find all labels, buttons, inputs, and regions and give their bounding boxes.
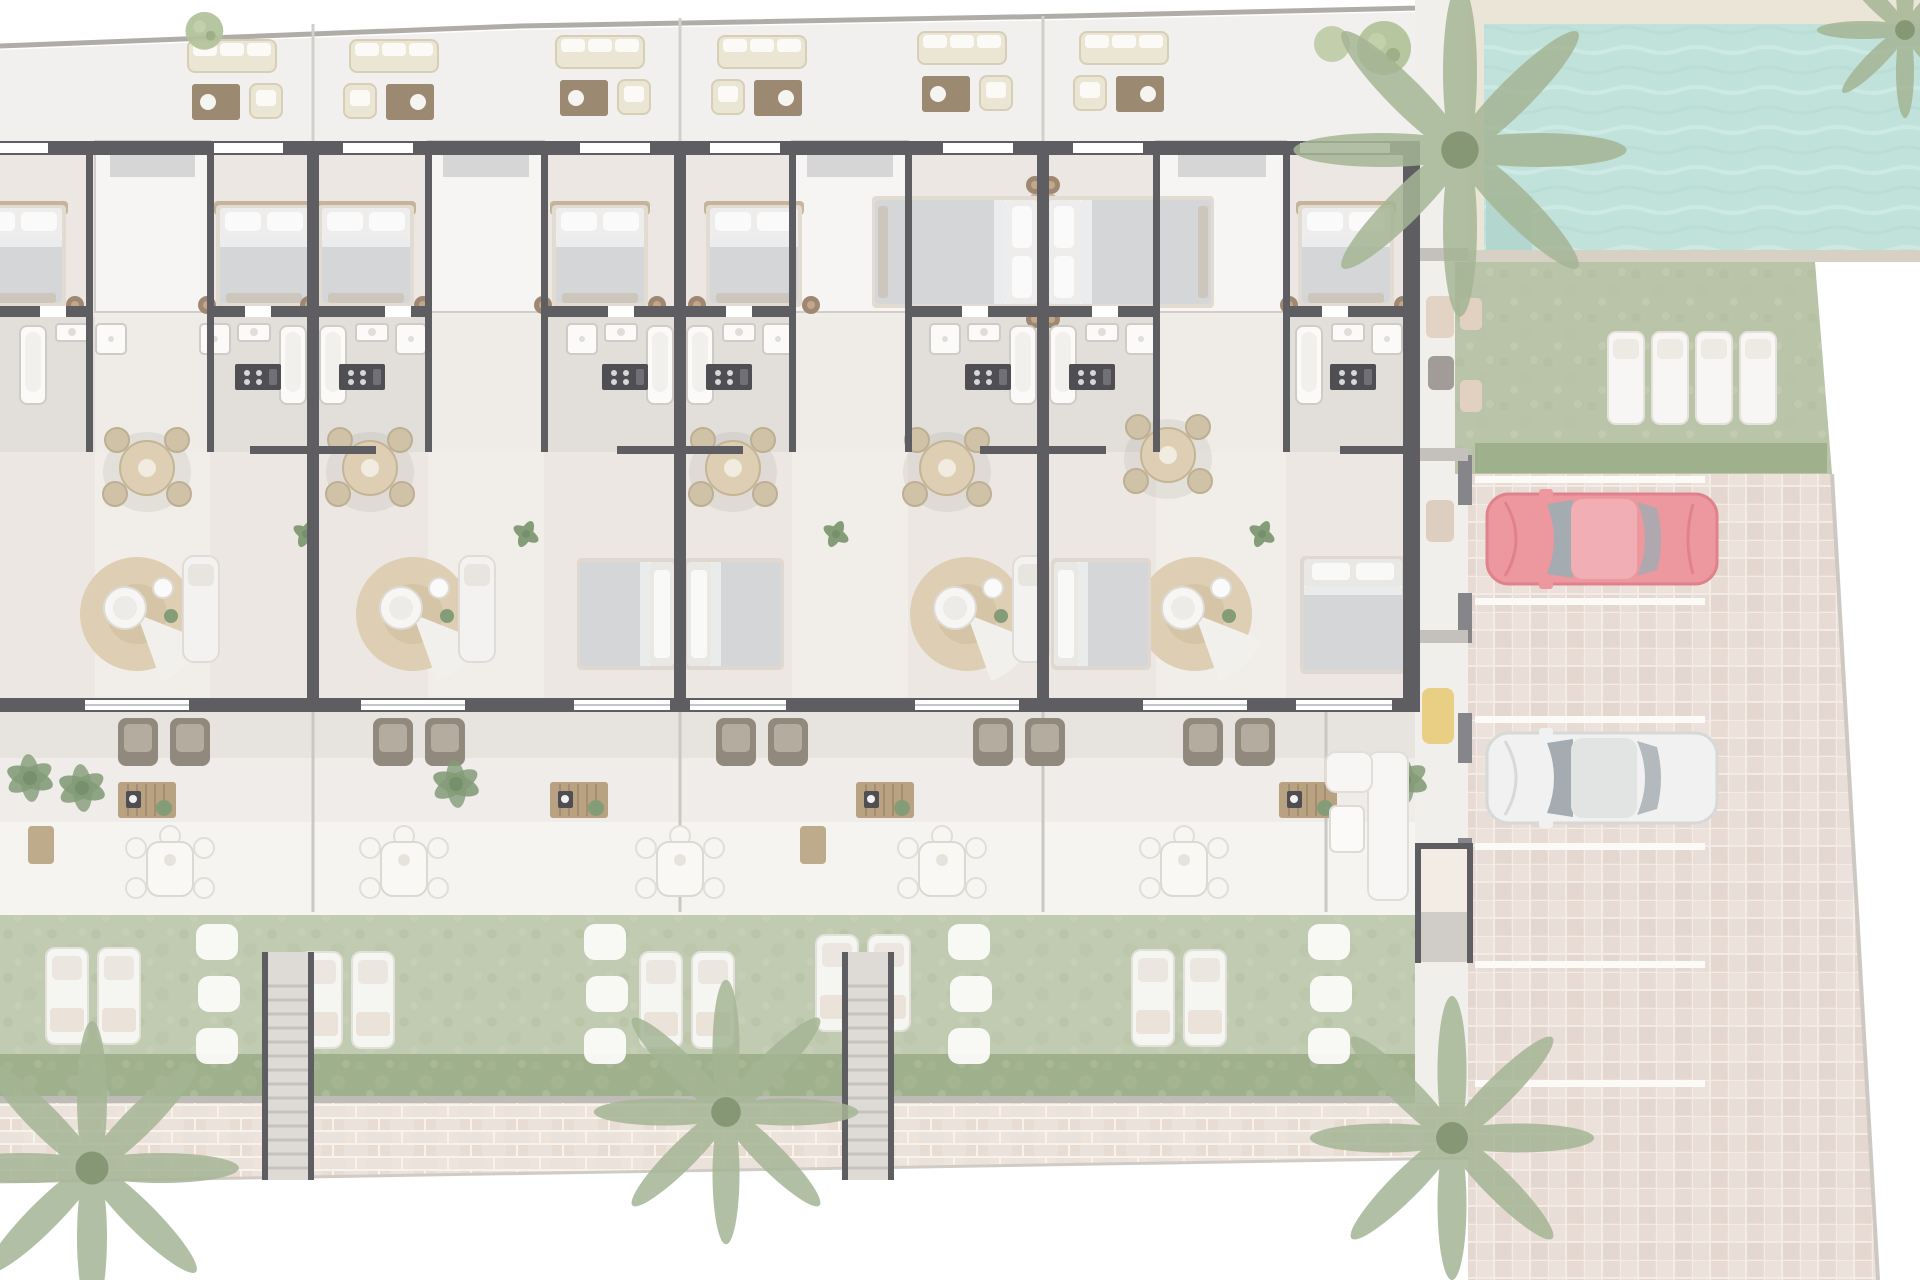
render-haze-overlay <box>0 0 1920 1280</box>
floorplan-svg <box>0 0 1920 1280</box>
site-plan-canvas <box>0 0 1920 1280</box>
